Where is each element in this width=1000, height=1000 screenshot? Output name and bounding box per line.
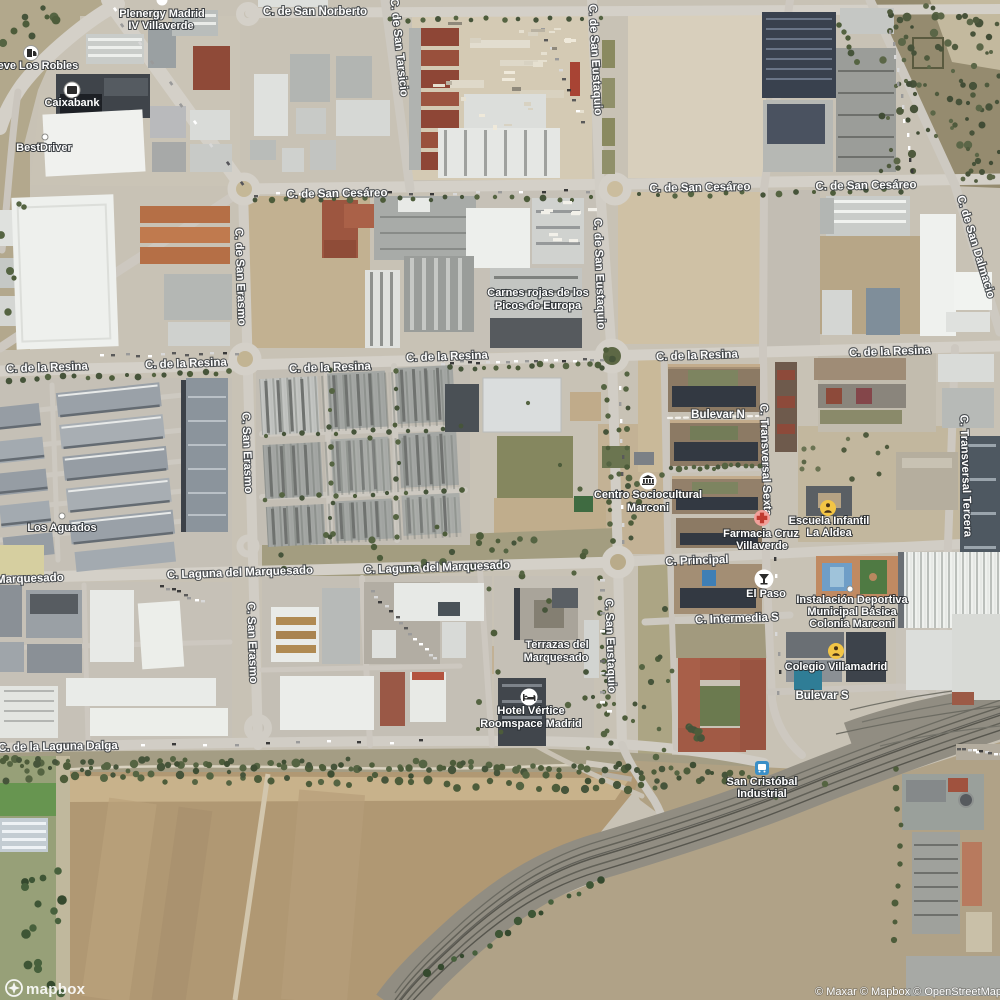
svg-text:Hotel Vértice: Hotel Vértice [497, 705, 564, 717]
svg-text:Caixabank: Caixabank [44, 97, 100, 109]
svg-text:Plenergy Madrid: Plenergy Madrid [119, 8, 205, 20]
svg-text:C. de San Cesáreo: C. de San Cesáreo [815, 179, 916, 193]
svg-text:Centro Sociocultural: Centro Sociocultural [594, 489, 702, 501]
svg-text:Colonia Marconi: Colonia Marconi [809, 618, 895, 630]
svg-text:C. de la Laguna Dalga: C. de la Laguna Dalga [0, 740, 118, 754]
svg-text:Mueve Los Robles: Mueve Los Robles [0, 60, 78, 72]
svg-text:Marquesado: Marquesado [0, 572, 64, 586]
svg-text:Marquesado: Marquesado [524, 652, 589, 664]
svg-text:C. de San Cesáreo: C. de San Cesáreo [649, 181, 750, 195]
svg-text:Instalación Deportiva: Instalación Deportiva [796, 594, 908, 606]
svg-text:Villaverde: Villaverde [736, 540, 788, 552]
svg-text:C. Principal: C. Principal [665, 554, 729, 568]
svg-text:IV Villaverde: IV Villaverde [128, 20, 193, 32]
svg-text:Industrial: Industrial [737, 788, 787, 800]
svg-text:La Aldea: La Aldea [806, 527, 852, 539]
svg-text:Marconi: Marconi [627, 502, 669, 514]
svg-text:C. de San Norberto: C. de San Norberto [263, 6, 367, 18]
svg-text:San Cristóbal: San Cristóbal [727, 776, 798, 788]
svg-text:C. de San Cesáreo: C. de San Cesáreo [286, 187, 387, 201]
svg-text:Farmacia Cruz: Farmacia Cruz [723, 528, 799, 540]
svg-text:Roomspace Madrid: Roomspace Madrid [480, 718, 581, 730]
svg-text:Terrazas del: Terrazas del [525, 639, 588, 651]
svg-text:Bulevar N: Bulevar N [691, 409, 745, 421]
svg-text:BestDriver: BestDriver [16, 142, 72, 154]
svg-text:Escuela Infantil: Escuela Infantil [789, 515, 870, 527]
svg-text:Carnes rojas de los: Carnes rojas de los [487, 287, 589, 299]
svg-text:© Maxar © Mapbox © OpenStreetM: © Maxar © Mapbox © OpenStreetMap [815, 986, 1000, 998]
svg-text:Los Aguados: Los Aguados [27, 522, 96, 534]
svg-text:El Paso: El Paso [746, 588, 786, 600]
svg-text:Picos de Europa: Picos de Europa [495, 300, 582, 312]
svg-text:Colegio Villamadrid: Colegio Villamadrid [785, 661, 888, 673]
svg-text:Municipal Básica: Municipal Básica [807, 606, 897, 618]
svg-text:mapbox: mapbox [26, 981, 86, 998]
svg-text:Bulevar S: Bulevar S [795, 690, 848, 702]
